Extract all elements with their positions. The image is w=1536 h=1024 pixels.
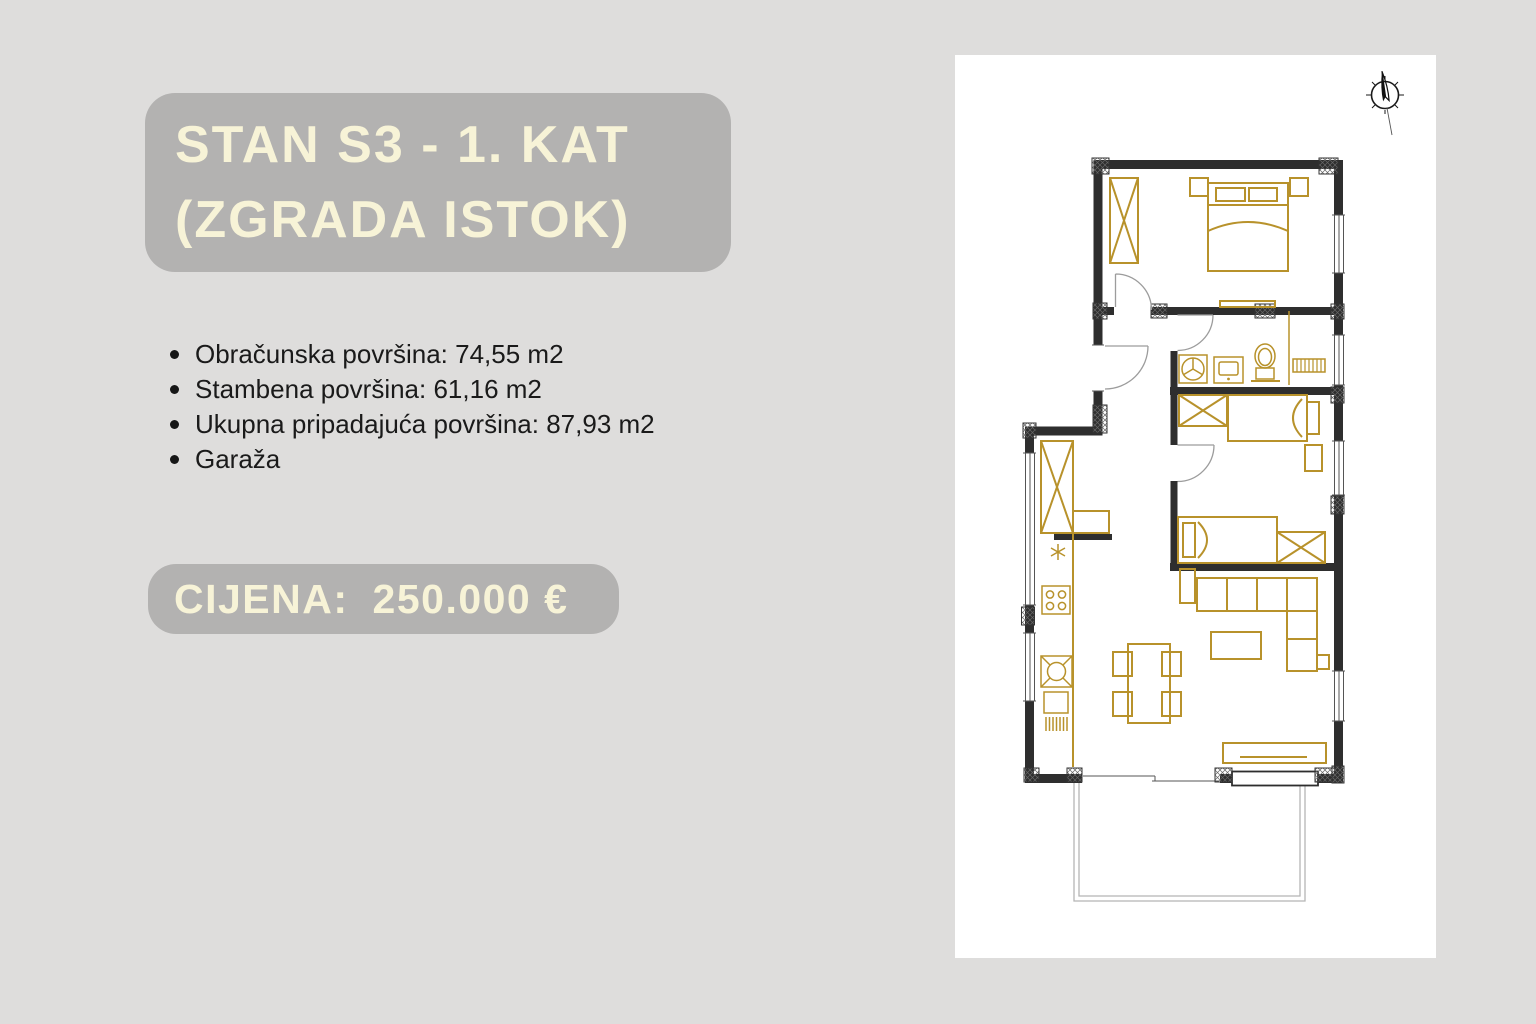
sofa [1197,578,1329,671]
exterior-walls [1030,165,1339,779]
window [1023,633,1036,701]
detail-item: Stambena površina: 61,16 m2 [170,372,655,407]
dining-furniture [1113,644,1181,723]
price-banner: CIJENA: 250.000 € [148,564,619,634]
nightstand [1290,178,1308,196]
window [1332,335,1345,385]
wardrobe [1179,395,1227,426]
chair [1113,652,1132,676]
dining-table [1128,644,1170,723]
kids-room-furniture [1178,395,1325,563]
compass-north-icon [1366,71,1404,135]
single-bed [1228,395,1319,441]
property-details-list: Obračunska površina: 74,55 m2 Stambena p… [170,337,655,477]
nightstand [1305,445,1322,471]
chair [1113,692,1132,716]
kitchen-sink [1041,656,1072,687]
detail-text: Garaža [195,444,280,475]
cooktop [1042,586,1070,614]
radiator [1293,359,1325,372]
nightstand [1190,178,1208,196]
coffee-table [1211,632,1261,659]
detail-item: Garaža [170,442,655,477]
windows [1023,215,1345,721]
price-value: 250.000 € [373,576,569,623]
door-bedroom [1116,274,1152,310]
door-entrance [1105,346,1148,389]
bullet-dot [170,420,179,429]
detail-item: Obračunska površina: 74,55 m2 [170,337,655,372]
window [1332,215,1345,273]
bathroom-fixtures [1179,311,1325,385]
living-room-furniture [1180,569,1329,763]
master-bedroom-furniture [1110,178,1308,307]
floorplan-panel [955,55,1436,958]
door-kids-room [1178,445,1215,482]
window [1332,441,1345,495]
detail-text: Obračunska površina: 74,55 m2 [195,339,564,370]
floorplan-drawing [955,55,1436,958]
bullet-dot [170,385,179,394]
balcony [1074,783,1305,901]
single-bed [1178,517,1277,563]
window [1023,453,1036,605]
title-line-1: STAN S3 - 1. KAT [175,118,731,173]
chair [1162,652,1181,676]
side-table [1180,569,1195,603]
detail-text: Ukupna pripadajuća površina: 87,93 m2 [195,409,655,440]
detail-text: Stambena površina: 61,16 m2 [195,374,542,405]
title-banner: STAN S3 - 1. KAT (ZGRADA ISTOK) [145,93,731,272]
door-bathroom [1178,315,1214,351]
chair [1162,692,1181,716]
double-bed [1208,183,1288,271]
washing-machine [1179,355,1207,383]
wardrobe [1110,178,1138,263]
toilet [1251,344,1280,381]
dishwasher [1044,692,1068,731]
real-estate-flyer: STAN S3 - 1. KAT (ZGRADA ISTOK) Obračuns… [0,0,1536,1024]
kitchen-furniture [1041,441,1109,767]
window [1332,671,1345,721]
tv-stand [1223,743,1326,763]
fridge-symbol [1051,544,1065,560]
bullet-dot [170,455,179,464]
counter [1073,511,1109,767]
tall-cabinet [1041,441,1073,533]
bullet-dot [170,350,179,359]
detail-item: Ukupna pripadajuća površina: 87,93 m2 [170,407,655,442]
price-label: CIJENA: [174,576,349,623]
wall-columns [1022,158,1345,783]
title-line-2: (ZGRADA ISTOK) [175,193,731,248]
wardrobe [1277,532,1325,563]
sink [1214,357,1243,383]
